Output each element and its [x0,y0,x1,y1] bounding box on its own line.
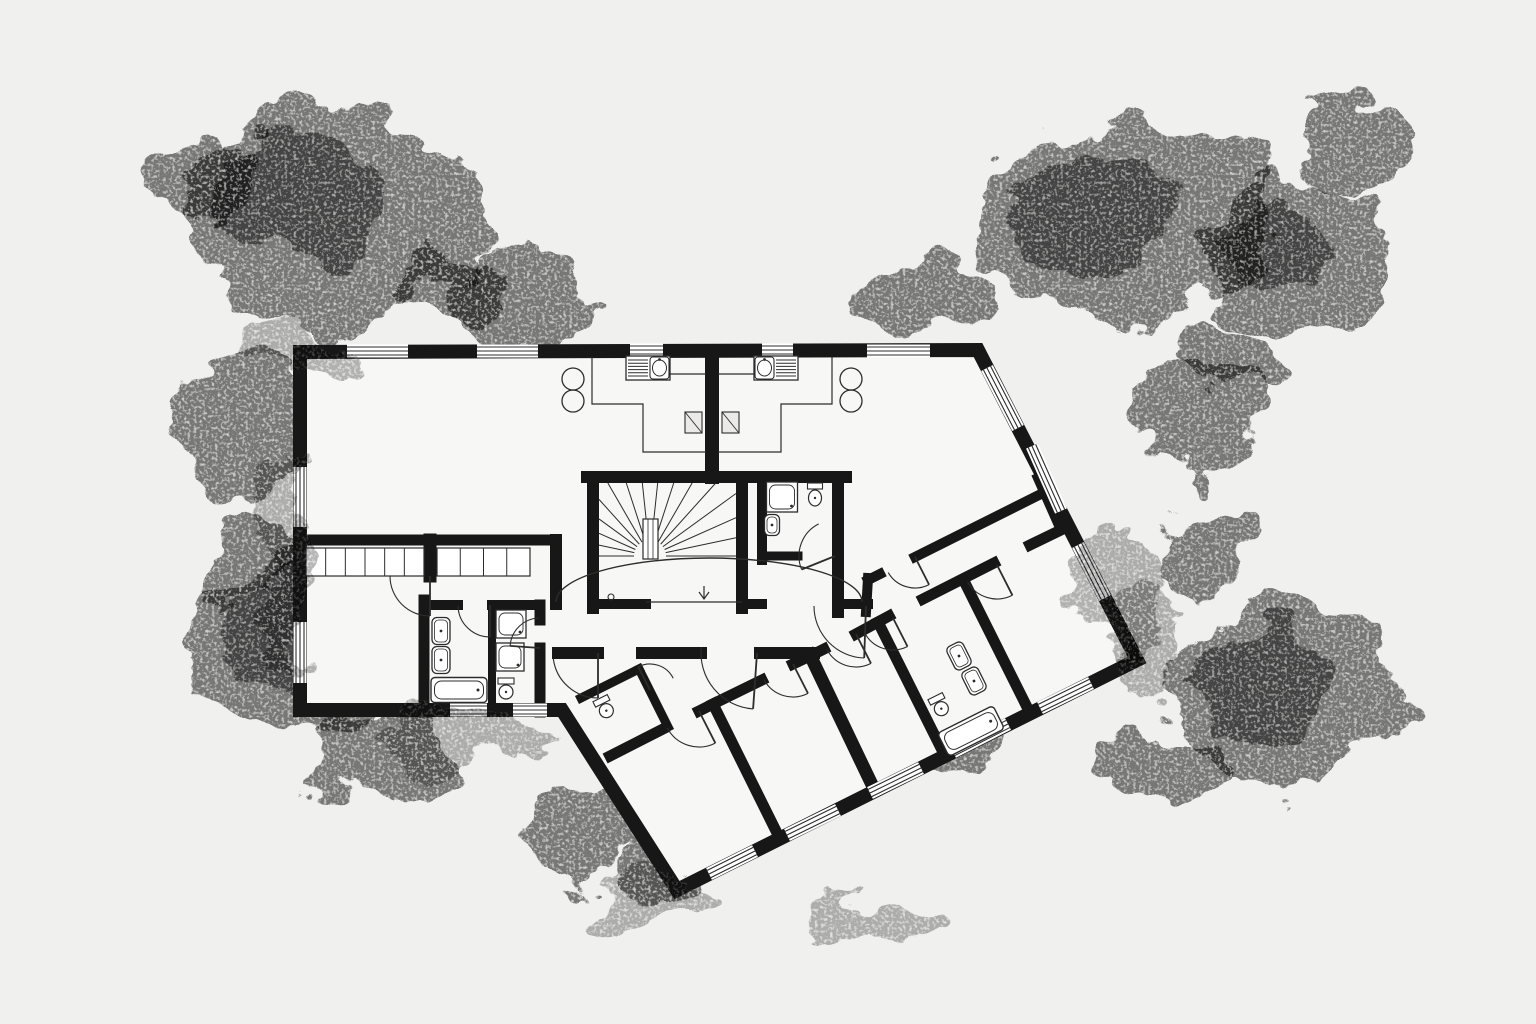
ground-texture-patch [560,879,720,931]
toilet-icon [498,678,514,699]
toilet-icon [808,483,823,506]
shower-icon [767,482,798,512]
ground-texture-patch [240,322,350,378]
tree-icon [857,254,993,342]
bath-sink-icon [432,618,450,645]
ground-texture-patch [375,714,565,770]
bath-sink-icon [765,515,780,536]
tree-icon [396,260,500,336]
sink-tap-dot [658,358,661,361]
ground-texture-patch [1105,580,1185,700]
tree-icon [1185,320,1275,400]
bath-sink-icon [432,647,450,674]
tree-icon [1110,723,1226,807]
stair-newel [643,519,658,559]
wardrobe [306,548,530,576]
floor-plan-page [0,0,1536,1024]
ground-texture-patch [800,890,940,940]
sink-tap-dot [763,358,766,361]
tree-shade-icon [1013,152,1178,262]
tree-icon [1290,102,1414,194]
tree-icon [136,130,260,226]
tree-shade-icon [1229,206,1330,287]
tree-shade-icon [1199,634,1326,735]
bathtub-icon [431,678,487,703]
floor-plan [0,0,1536,1024]
interior-wall [812,649,824,655]
ground-texture-patch [257,445,309,665]
tree-icon [1152,501,1260,589]
